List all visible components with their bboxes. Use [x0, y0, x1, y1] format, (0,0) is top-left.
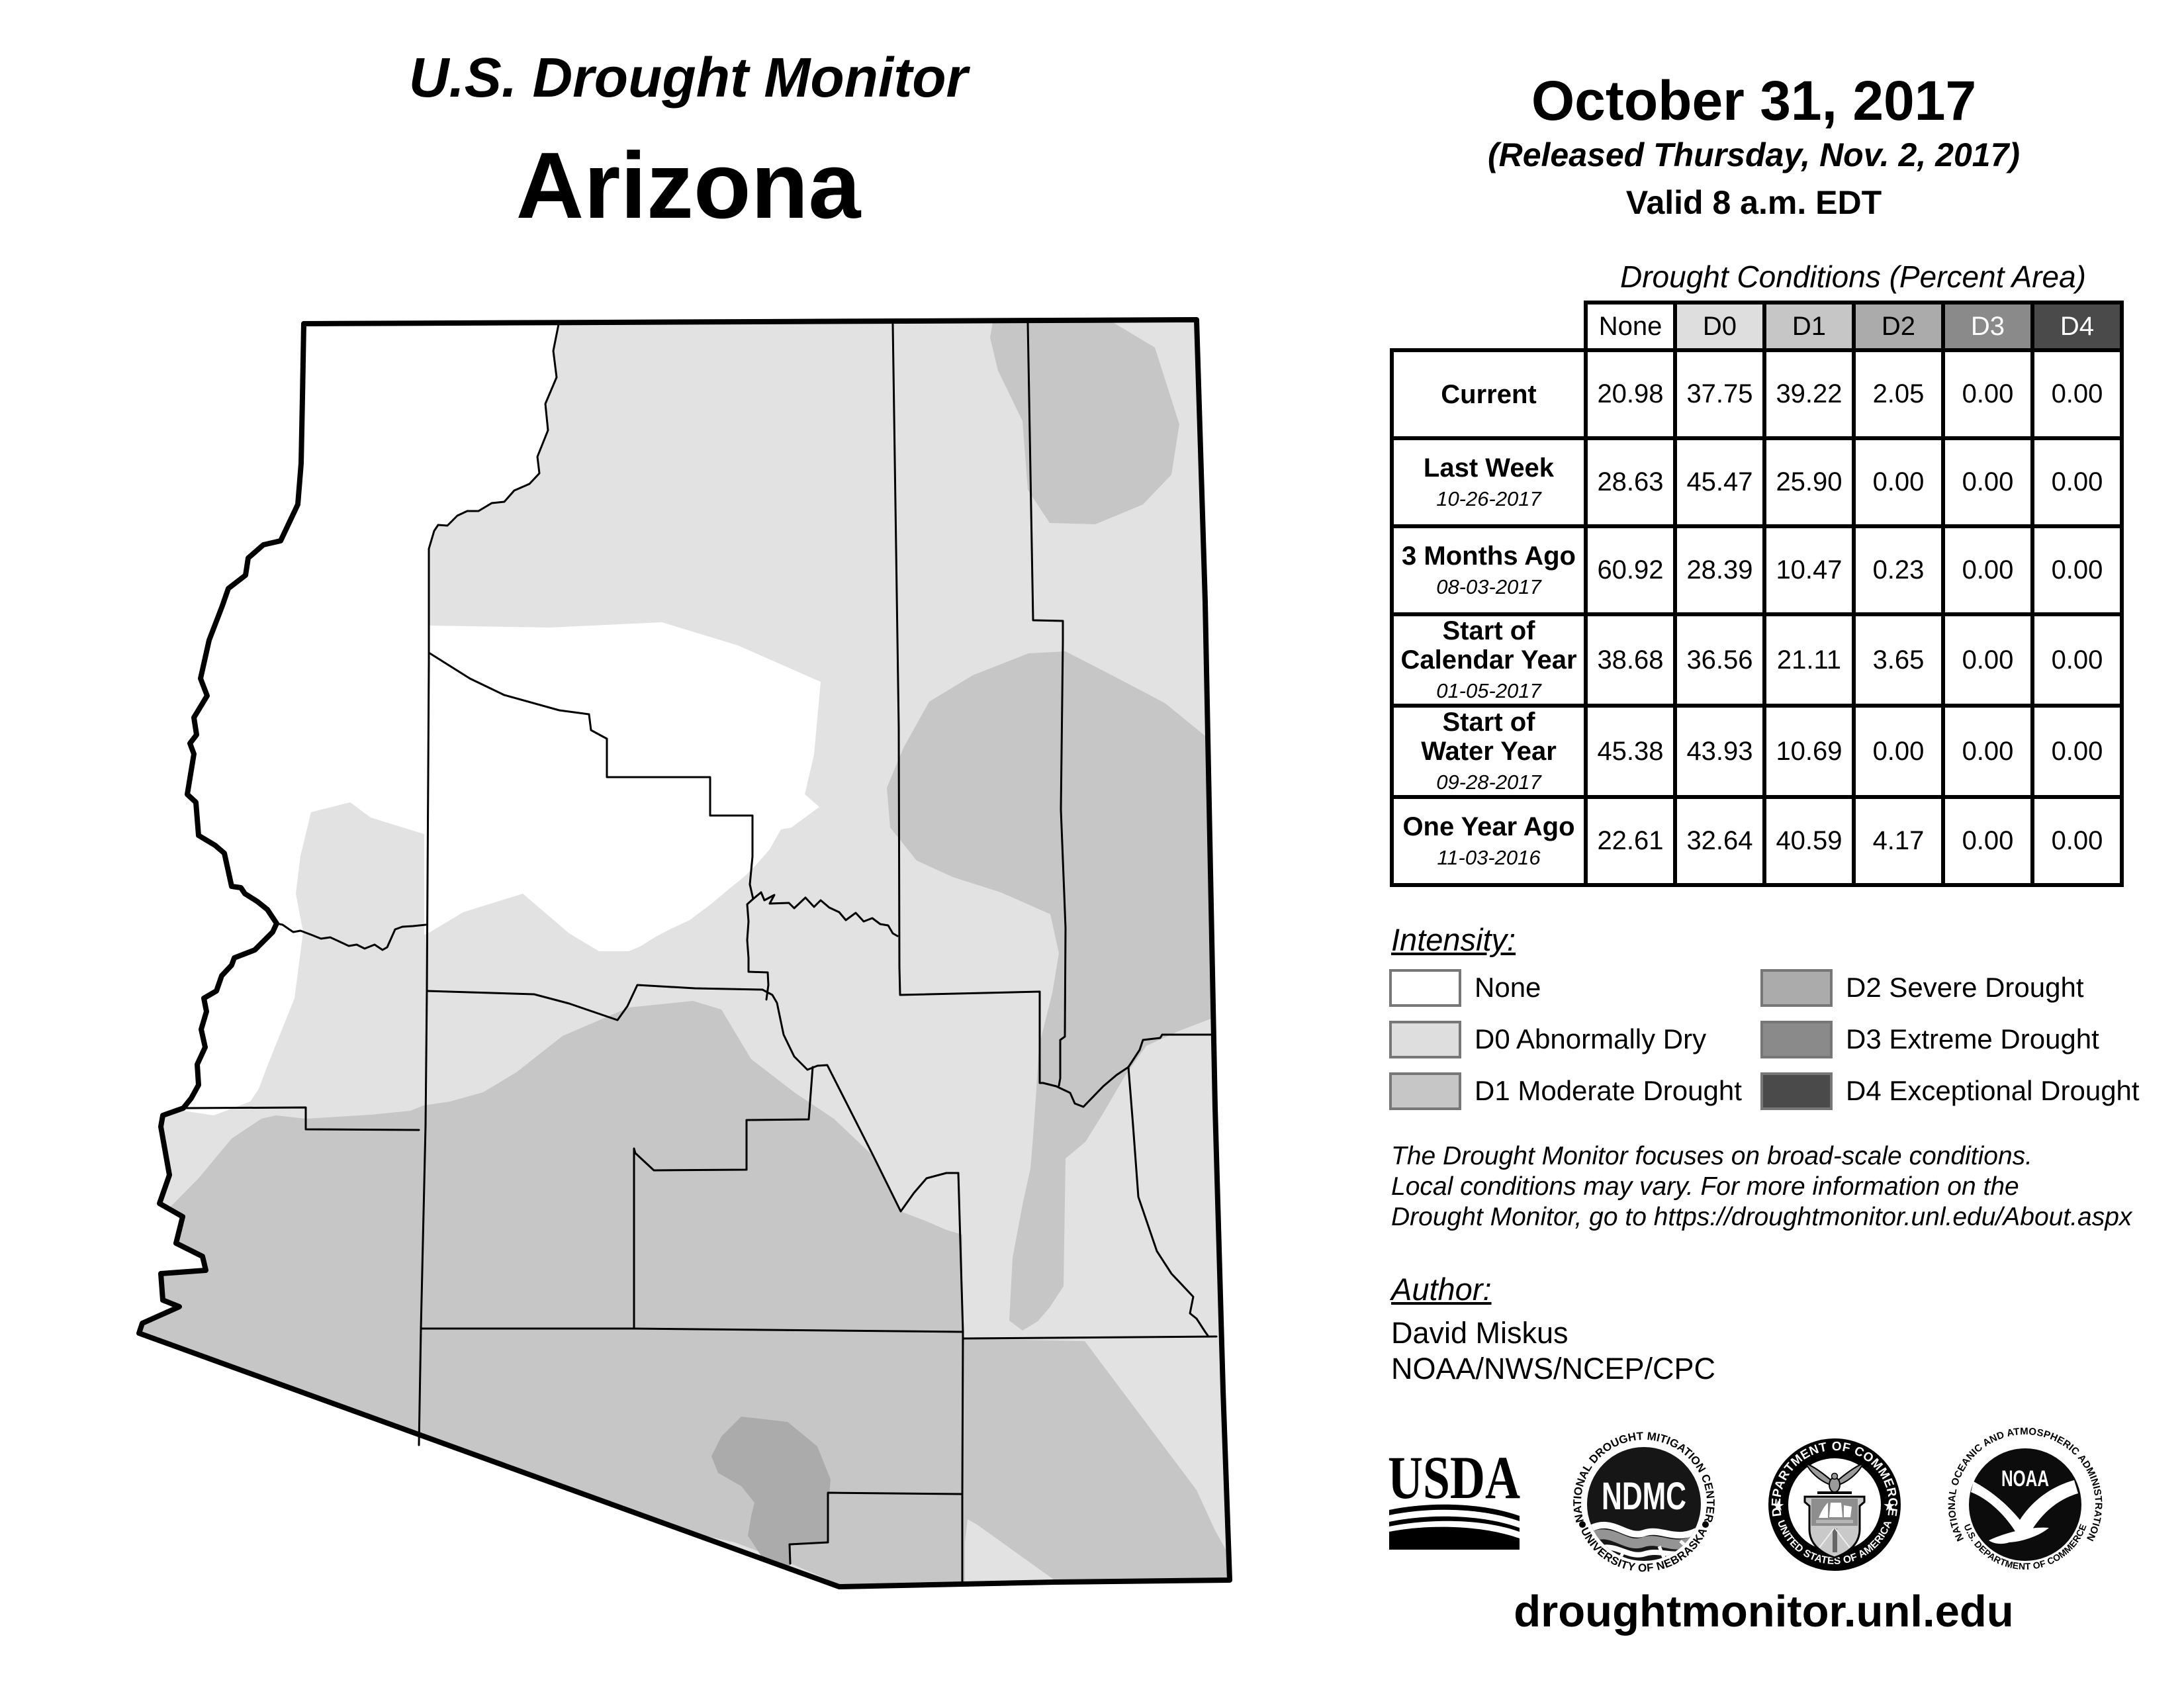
svg-text:USDA: USDA [1388, 1444, 1520, 1511]
svg-text:NDMC: NDMC [1602, 1475, 1686, 1518]
svg-text:★: ★ [1772, 1497, 1785, 1514]
svg-text:★: ★ [1883, 1497, 1896, 1514]
svg-text:NOAA: NOAA [2001, 1466, 2049, 1491]
